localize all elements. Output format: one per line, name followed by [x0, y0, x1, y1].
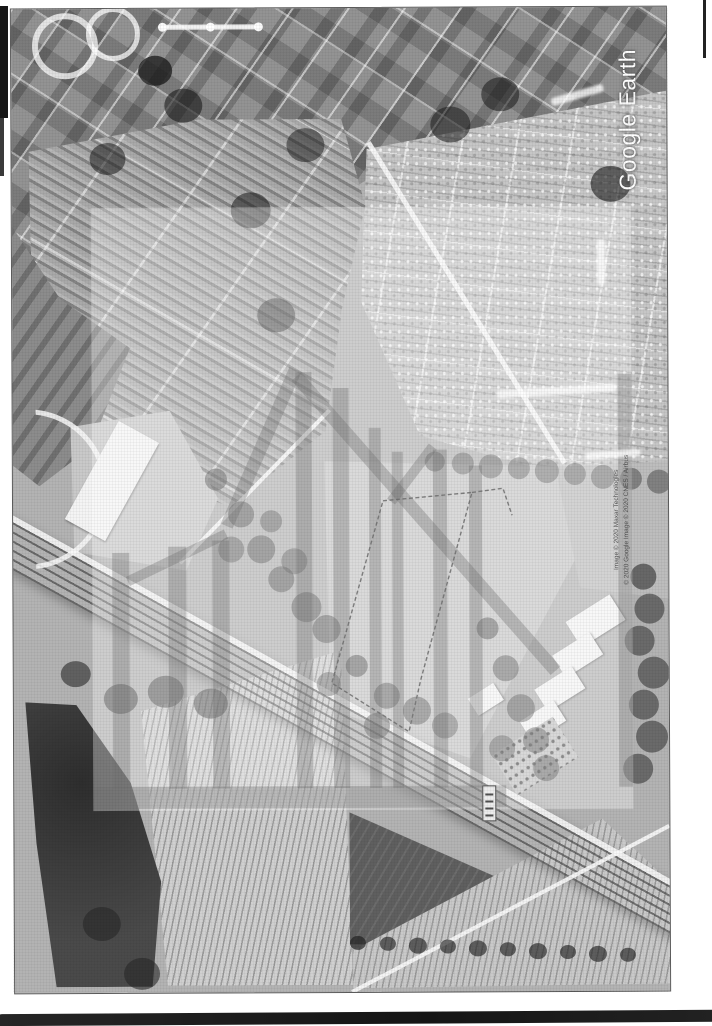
scale-bar-dot: [206, 23, 215, 32]
attribution-line: Image © 2020 CNES / Airbus: [623, 455, 630, 539]
road-label: [597, 239, 605, 285]
aerial-photo: Google Earth Image © 2020 Maxar Technolo…: [11, 7, 670, 994]
scale-bar-dot: [254, 22, 263, 31]
attribution-line: Image © 2020 Maxar Technologies: [613, 470, 620, 570]
scan-edge-artifact: [0, 6, 8, 118]
google-earth-watermark: Google Earth: [614, 10, 647, 230]
scale-bar-dot: [158, 23, 167, 32]
scanned-page: { "document": { "kind": "Scanned black-a…: [0, 0, 712, 1024]
scan-edge-artifact: [0, 118, 4, 176]
circular-structure: [86, 7, 140, 61]
attribution-text: Image © 2020 Maxar Technologies © 2020 G…: [612, 435, 645, 605]
watermark-logo-overlay: [91, 206, 634, 811]
scan-edge-artifact: [703, 0, 706, 58]
road-sign: [482, 785, 496, 821]
scale-bar-ghost: [161, 24, 260, 29]
photo-content: Google Earth Image © 2020 Maxar Technolo…: [11, 7, 670, 994]
attribution-line: © 2020 Google: [623, 541, 630, 585]
